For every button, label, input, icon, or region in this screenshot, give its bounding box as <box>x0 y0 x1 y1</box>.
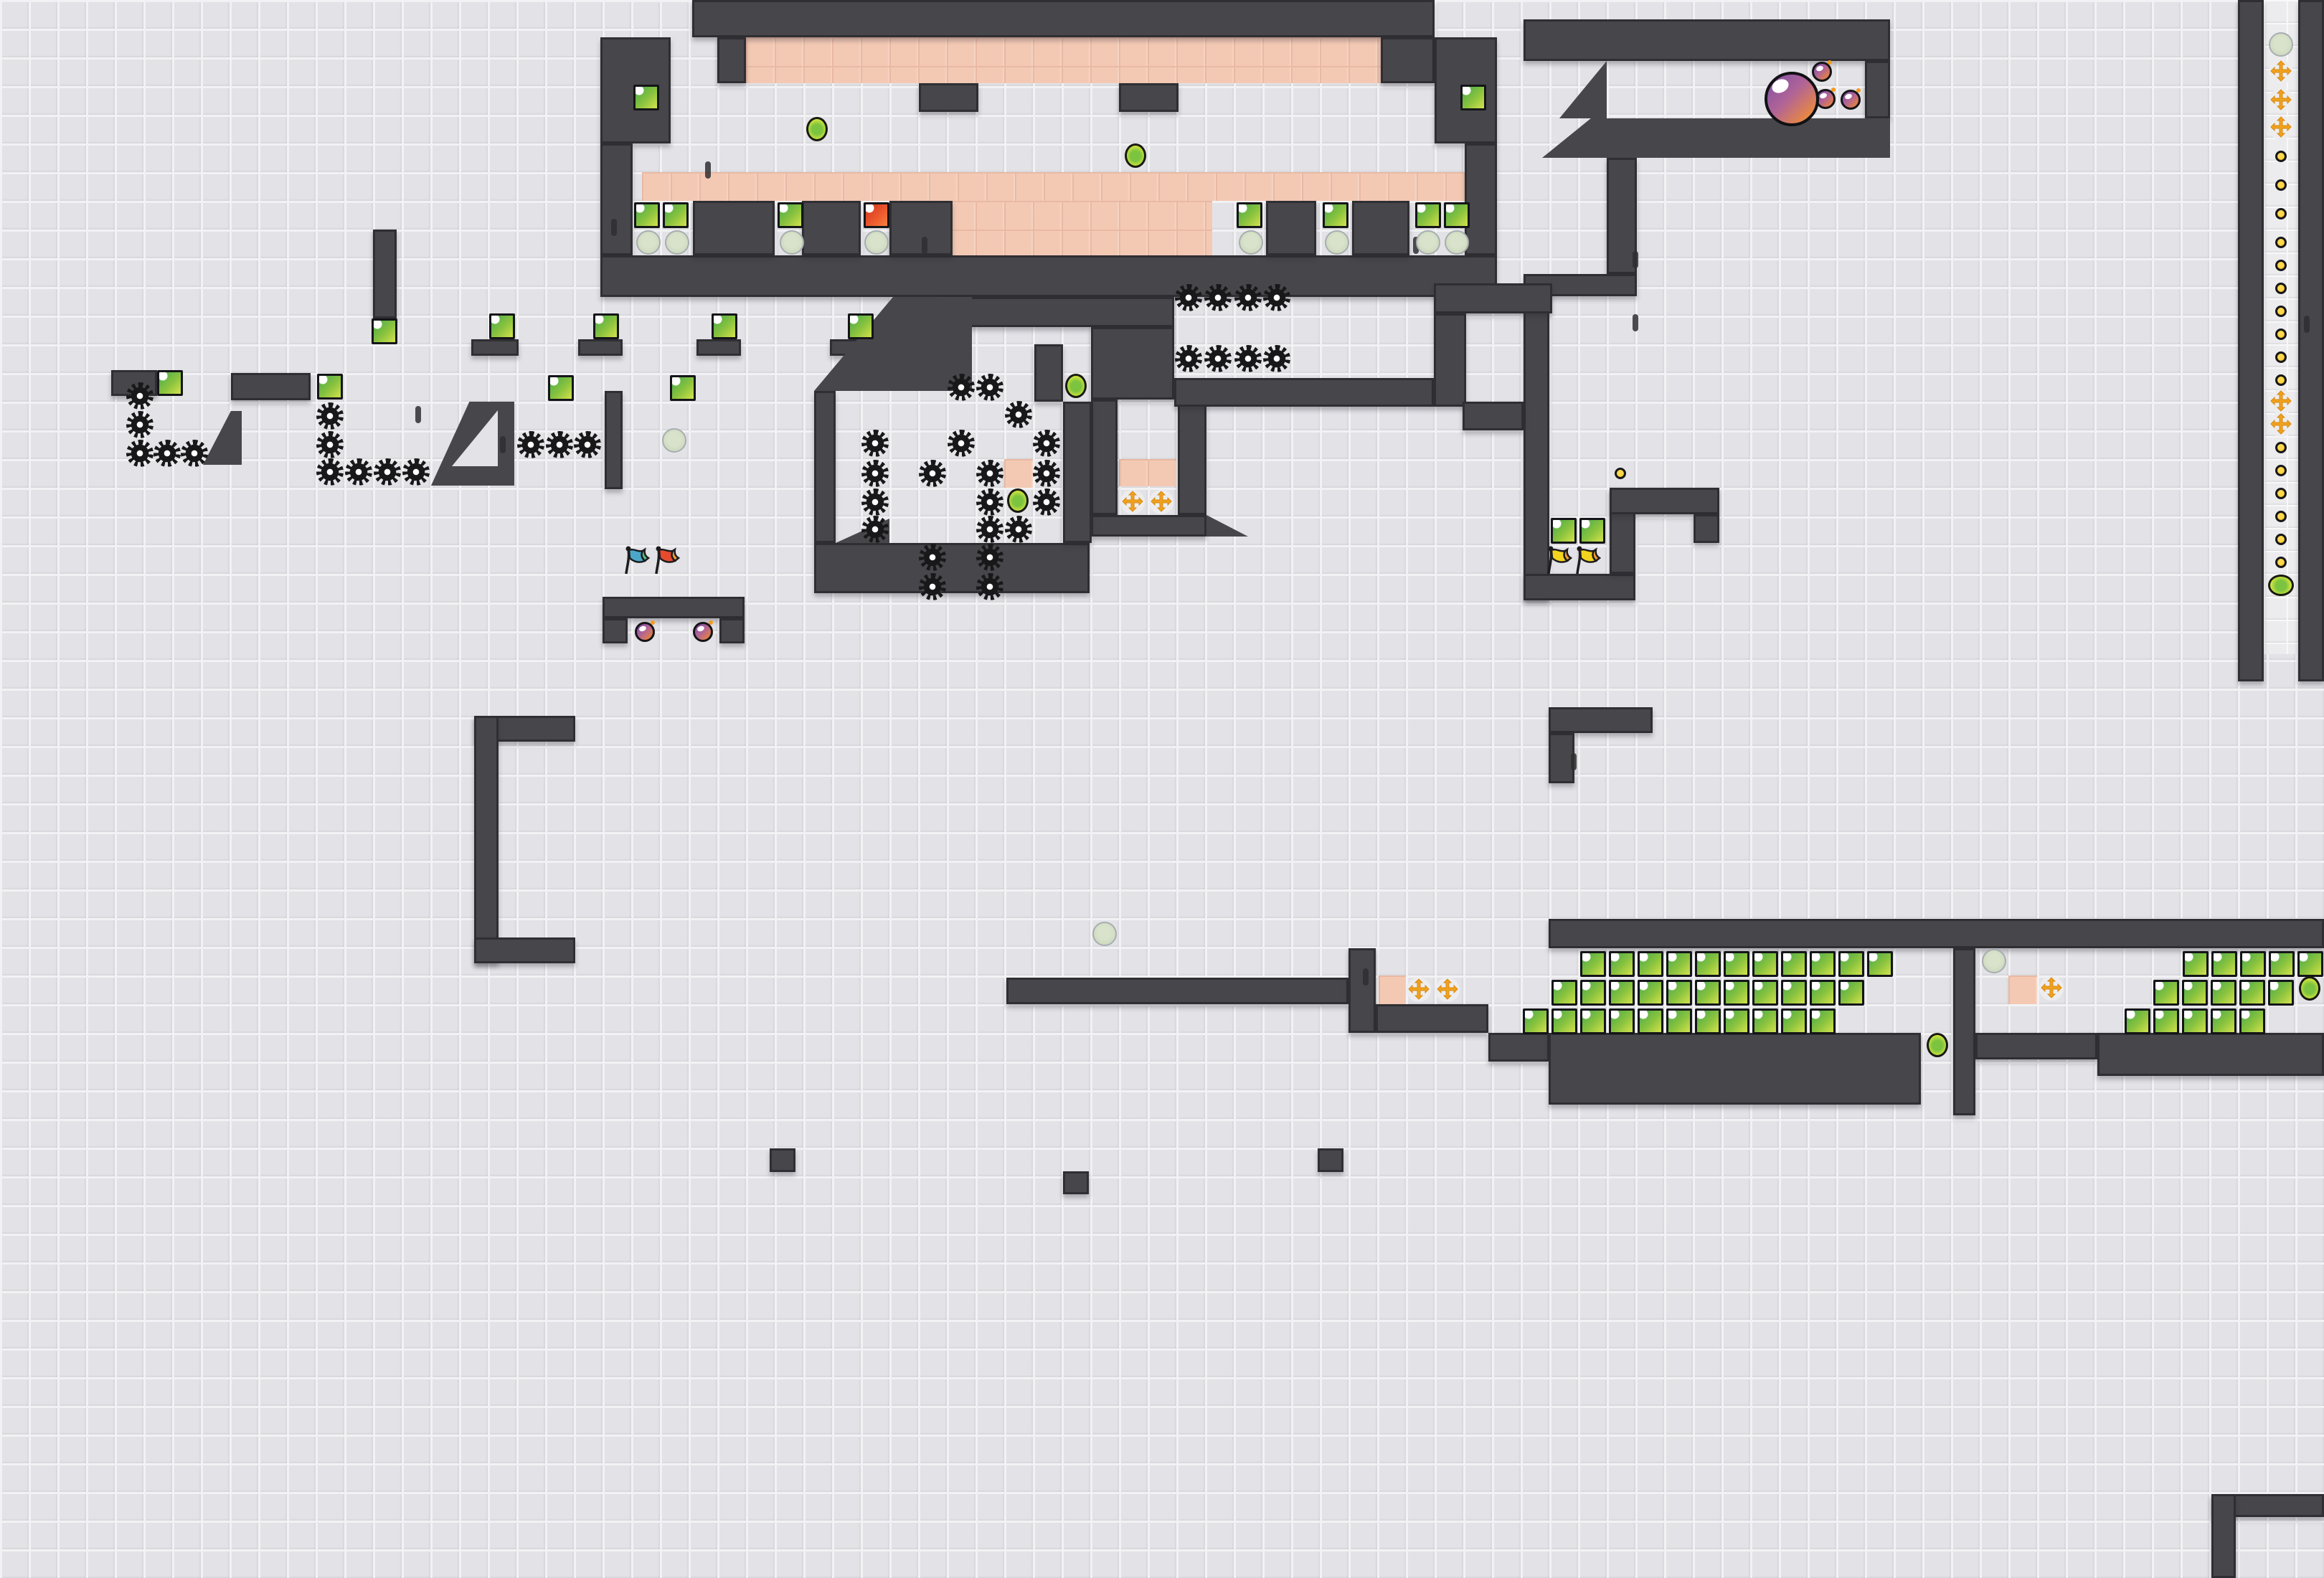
coin[interactable] <box>1125 143 1146 168</box>
saw-blade-hazard-icon[interactable] <box>1175 345 1202 372</box>
hazard-pink-tiles <box>1004 459 1033 488</box>
small-coin[interactable] <box>2275 374 2287 386</box>
green-block[interactable] <box>1838 980 1864 1006</box>
saw-blade-hazard-icon[interactable] <box>919 573 946 600</box>
wall-block <box>940 297 1174 327</box>
saw-blade-hazard-icon[interactable] <box>948 374 975 401</box>
collected-coin-marker <box>780 230 804 255</box>
wall-block <box>1091 515 1206 537</box>
green-block[interactable] <box>1638 1008 1663 1034</box>
saw-blade-hazard-icon[interactable] <box>126 411 153 438</box>
wall-block <box>600 255 1497 297</box>
green-block[interactable] <box>1666 1008 1692 1034</box>
wall-tick <box>500 436 506 453</box>
small-coin[interactable] <box>2275 557 2287 568</box>
arrow-cross-pickup-icon[interactable] <box>1406 977 1432 1003</box>
green-block[interactable] <box>663 202 689 228</box>
saw-blade-hazard-icon[interactable] <box>1234 345 1262 372</box>
green-block[interactable] <box>2269 951 2295 977</box>
arrow-cross-pickup-icon[interactable] <box>1120 489 1146 515</box>
small-coin[interactable] <box>2275 237 2287 248</box>
green-block[interactable] <box>1551 1008 1577 1034</box>
green-block[interactable] <box>778 202 803 228</box>
bomb-icon[interactable] <box>693 622 713 642</box>
wall-block <box>474 716 499 963</box>
collected-coin-marker <box>1445 230 1469 255</box>
green-block[interactable] <box>1609 1008 1635 1034</box>
wall-block <box>1524 574 1635 600</box>
arrow-cross-pickup-icon[interactable] <box>2268 115 2294 141</box>
wall-tick <box>1363 968 1369 986</box>
saw-blade-hazard-icon[interactable] <box>1033 430 1060 457</box>
small-coin[interactable] <box>2275 329 2287 340</box>
saw-blade-hazard-icon[interactable] <box>1263 284 1290 311</box>
green-block[interactable] <box>1724 1008 1749 1034</box>
flag-yellow-icon[interactable] <box>1544 544 1575 575</box>
green-block[interactable] <box>593 313 619 339</box>
green-block[interactable] <box>1237 202 1262 228</box>
wall-block <box>1610 488 1719 514</box>
wall-block <box>1953 948 1975 1115</box>
collected-coin-marker <box>662 428 686 453</box>
green-block[interactable] <box>1666 951 1692 977</box>
green-block[interactable] <box>2153 1008 2179 1034</box>
wall-tick <box>611 219 617 236</box>
green-block[interactable] <box>2211 1008 2236 1034</box>
collected-coin-marker <box>665 230 689 255</box>
wall-block <box>2238 0 2264 681</box>
green-block[interactable] <box>1695 951 1721 977</box>
saw-blade-hazard-icon[interactable] <box>1005 401 1032 428</box>
saw-blade-hazard-icon[interactable] <box>546 431 573 458</box>
wall-tick <box>1571 753 1577 770</box>
green-block[interactable] <box>1695 980 1721 1006</box>
green-block[interactable] <box>1724 951 1749 977</box>
hazard-pink-tiles <box>1119 459 1176 486</box>
green-block[interactable] <box>1580 951 1606 977</box>
player-ball[interactable] <box>1765 72 1819 126</box>
coin[interactable] <box>1007 488 1029 513</box>
arrow-cross-pickup-icon[interactable] <box>2268 88 2294 113</box>
small-coin[interactable] <box>2275 442 2287 453</box>
saw-blade-hazard-icon[interactable] <box>861 430 889 457</box>
collected-coin-marker <box>636 230 661 255</box>
small-coin[interactable] <box>2275 465 2287 476</box>
green-block[interactable] <box>1666 980 1692 1006</box>
green-block[interactable] <box>1415 202 1441 228</box>
green-block[interactable] <box>548 375 574 401</box>
green-block[interactable] <box>2268 980 2294 1006</box>
wall-block <box>1865 61 1890 118</box>
flag-blue-icon[interactable] <box>621 544 653 575</box>
wall-block <box>692 0 1435 37</box>
bomb-icon[interactable] <box>635 622 655 642</box>
saw-blade-hazard-icon[interactable] <box>919 544 946 571</box>
green-block[interactable] <box>1724 980 1749 1006</box>
wall-block <box>1063 1171 1089 1194</box>
wall-block <box>1266 201 1316 255</box>
green-block[interactable] <box>2153 980 2179 1006</box>
wall-block <box>1549 707 1653 733</box>
saw-blade-hazard-icon[interactable] <box>316 402 344 430</box>
saw-blade-hazard-icon[interactable] <box>861 488 889 516</box>
green-block[interactable] <box>1781 951 1807 977</box>
wall-block <box>696 339 741 356</box>
wall-block <box>1975 1033 2097 1059</box>
wall-tick <box>1633 251 1638 268</box>
small-coin[interactable] <box>2275 534 2287 545</box>
coin[interactable] <box>2299 976 2320 1001</box>
wall-block <box>719 618 745 643</box>
green-block[interactable] <box>1523 1008 1549 1034</box>
small-coin[interactable] <box>2275 260 2287 271</box>
arrow-cross-pickup-icon[interactable] <box>2268 389 2294 415</box>
green-block[interactable] <box>2183 951 2209 977</box>
coin[interactable] <box>2268 575 2294 596</box>
red-block[interactable] <box>864 202 889 228</box>
wall-slope <box>203 411 242 465</box>
wall-block <box>693 201 775 255</box>
saw-blade-hazard-icon[interactable] <box>316 431 344 458</box>
green-block[interactable] <box>670 375 696 401</box>
green-block[interactable] <box>1444 202 1470 228</box>
bomb-icon[interactable] <box>1812 62 1832 82</box>
wall-block <box>1318 1148 1343 1172</box>
wall-tick <box>415 406 421 423</box>
saw-blade-hazard-icon[interactable] <box>402 458 430 486</box>
green-block[interactable] <box>848 313 874 339</box>
collected-coin-marker <box>1239 230 1263 255</box>
saw-blade-hazard-icon[interactable] <box>976 544 1003 571</box>
green-block[interactable] <box>1810 980 1836 1006</box>
wall-block <box>1381 37 1435 83</box>
green-block[interactable] <box>2240 951 2266 977</box>
wall-block <box>889 201 953 255</box>
green-block[interactable] <box>1867 951 1893 977</box>
wall-block <box>1434 313 1466 407</box>
green-block[interactable] <box>633 85 659 110</box>
saw-blade-hazard-icon[interactable] <box>517 431 544 458</box>
arrow-cross-pickup-icon[interactable] <box>2039 975 2064 1001</box>
wall-block <box>2298 0 2324 681</box>
green-block[interactable] <box>1551 518 1577 544</box>
green-block[interactable] <box>1752 1008 1778 1034</box>
saw-blade-hazard-icon[interactable] <box>1175 284 1202 311</box>
wall-block <box>1694 514 1719 543</box>
green-block[interactable] <box>2182 980 2208 1006</box>
wall-tick <box>2304 316 2310 333</box>
small-coin[interactable] <box>2275 151 2287 162</box>
saw-blade-hazard-icon[interactable] <box>976 573 1003 600</box>
saw-blade-hazard-icon[interactable] <box>976 516 1003 543</box>
green-block[interactable] <box>1580 1008 1606 1034</box>
saw-blade-hazard-icon[interactable] <box>976 460 1003 487</box>
wall-slope <box>1559 61 1607 118</box>
coin[interactable] <box>1065 374 1087 398</box>
saw-blade-hazard-icon[interactable] <box>861 460 889 487</box>
green-block[interactable] <box>2125 1008 2150 1034</box>
wall-block <box>1174 378 1434 407</box>
saw-blade-hazard-icon[interactable] <box>1234 284 1262 311</box>
saw-blade-hazard-icon[interactable] <box>374 458 401 486</box>
small-coin[interactable] <box>2275 208 2287 219</box>
saw-blade-hazard-icon[interactable] <box>1033 460 1060 487</box>
green-block[interactable] <box>1551 980 1577 1006</box>
saw-blade-hazard-icon[interactable] <box>1204 284 1232 311</box>
green-block[interactable] <box>1810 951 1836 977</box>
green-block[interactable] <box>372 318 397 344</box>
hazard-pink-tiles <box>642 172 1496 201</box>
small-coin[interactable] <box>2275 351 2287 363</box>
saw-blade-hazard-icon[interactable] <box>316 458 344 486</box>
hazard-pink-tiles <box>2008 975 2037 1004</box>
green-block[interactable] <box>1580 980 1606 1006</box>
saw-blade-hazard-icon[interactable] <box>948 430 975 457</box>
green-block[interactable] <box>2211 951 2237 977</box>
wall-block <box>1348 948 1376 1033</box>
wall-block <box>814 391 836 543</box>
wall-block <box>471 339 519 356</box>
flag-yellow-icon[interactable] <box>1572 544 1604 575</box>
saw-blade-hazard-icon[interactable] <box>861 516 889 543</box>
wall-tick <box>705 161 711 179</box>
green-block[interactable] <box>1323 202 1348 228</box>
wall-block <box>605 391 623 489</box>
coin[interactable] <box>1927 1033 1948 1057</box>
wall-block <box>814 543 1090 593</box>
green-block[interactable] <box>317 374 343 400</box>
wall-block <box>1524 19 1890 61</box>
wall-block <box>2211 1494 2236 1578</box>
green-block[interactable] <box>1638 980 1663 1006</box>
saw-blade-hazard-icon[interactable] <box>976 488 1003 516</box>
coin[interactable] <box>806 117 828 141</box>
wall-block <box>1034 344 1063 402</box>
wall-block <box>600 143 633 255</box>
small-coin[interactable] <box>2275 179 2287 191</box>
saw-blade-hazard-icon[interactable] <box>1033 488 1060 516</box>
green-block[interactable] <box>634 202 660 228</box>
green-block[interactable] <box>489 313 515 339</box>
green-block[interactable] <box>2182 1008 2208 1034</box>
green-block[interactable] <box>1579 518 1605 544</box>
arrow-cross-pickup-icon[interactable] <box>1148 489 1174 515</box>
small-coin[interactable] <box>1615 468 1626 479</box>
saw-blade-hazard-icon[interactable] <box>1263 345 1290 372</box>
wall-block <box>1091 400 1118 515</box>
wall-block <box>373 230 397 318</box>
wall-block <box>1119 83 1178 112</box>
green-block[interactable] <box>2239 980 2265 1006</box>
wall-block <box>1549 919 2324 948</box>
game-level-map <box>0 0 2324 1578</box>
wall-block <box>1434 283 1552 313</box>
wall-block <box>231 373 311 400</box>
green-block[interactable] <box>1460 85 1486 110</box>
wall-block <box>1465 143 1497 255</box>
saw-blade-hazard-icon[interactable] <box>126 440 153 467</box>
wall-block <box>603 597 745 618</box>
wall-slope <box>1206 515 1248 537</box>
green-block[interactable] <box>1609 980 1635 1006</box>
flag-red-icon[interactable] <box>651 544 683 575</box>
wall-block <box>1463 402 1524 430</box>
wall-block <box>603 618 628 643</box>
saw-blade-hazard-icon[interactable] <box>1204 345 1232 372</box>
green-block[interactable] <box>2297 951 2323 977</box>
arrow-cross-pickup-icon[interactable] <box>1435 977 1460 1003</box>
saw-blade-hazard-icon[interactable] <box>574 431 601 458</box>
green-block[interactable] <box>1638 951 1663 977</box>
saw-blade-hazard-icon[interactable] <box>919 460 946 487</box>
collected-coin-marker <box>864 230 889 255</box>
hazard-pink-tiles <box>1379 975 1406 1004</box>
wall-slope <box>1542 118 1890 158</box>
green-block[interactable] <box>712 313 737 339</box>
green-block[interactable] <box>1695 1008 1721 1034</box>
wall-block <box>1006 978 1348 1004</box>
green-block[interactable] <box>1810 1008 1836 1034</box>
wall-block <box>717 37 746 83</box>
wall-block <box>1376 1004 1488 1033</box>
green-block[interactable] <box>1609 951 1635 977</box>
saw-blade-hazard-icon[interactable] <box>1005 516 1032 543</box>
small-coin[interactable] <box>2275 306 2287 317</box>
wall-block <box>1352 201 1409 255</box>
collected-coin-marker <box>1325 230 1349 255</box>
green-block[interactable] <box>2211 980 2236 1006</box>
small-coin[interactable] <box>2275 511 2287 522</box>
green-block[interactable] <box>1752 980 1778 1006</box>
green-block[interactable] <box>1752 951 1778 977</box>
collected-coin-marker <box>1416 230 1440 255</box>
wall-block <box>474 937 575 963</box>
green-block[interactable] <box>1781 1008 1807 1034</box>
hazard-pink-tiles <box>947 201 1212 255</box>
saw-blade-hazard-icon[interactable] <box>126 382 153 410</box>
saw-blade-hazard-icon[interactable] <box>153 440 181 467</box>
wall-block <box>2097 1033 2324 1076</box>
green-block[interactable] <box>2239 1008 2265 1034</box>
collected-coin-marker <box>1982 949 2006 973</box>
wall-block <box>1063 402 1092 543</box>
saw-blade-hazard-icon[interactable] <box>345 458 372 486</box>
green-block[interactable] <box>1781 980 1807 1006</box>
wall-block <box>1178 402 1206 515</box>
small-coin[interactable] <box>2275 488 2287 499</box>
arrow-cross-pickup-icon[interactable] <box>2268 59 2294 85</box>
small-coin[interactable] <box>2275 283 2287 294</box>
hazard-pink-tiles <box>746 37 1381 83</box>
wall-block <box>1488 1033 1549 1062</box>
wall-tick <box>1633 314 1638 331</box>
collected-coin-marker <box>2269 32 2293 57</box>
wall-tick <box>922 237 927 254</box>
saw-blade-hazard-icon[interactable] <box>181 440 208 467</box>
wall-block <box>1549 1033 1921 1105</box>
wall-block <box>1091 327 1174 400</box>
wall-block <box>770 1148 795 1172</box>
wall-block <box>919 83 978 112</box>
green-block[interactable] <box>157 370 183 396</box>
arrow-cross-pickup-icon[interactable] <box>2268 412 2294 438</box>
bomb-icon[interactable] <box>1841 90 1861 110</box>
collected-coin-marker <box>1092 922 1117 946</box>
wall-block <box>578 339 623 356</box>
green-block[interactable] <box>1838 951 1864 977</box>
wall-block <box>802 201 861 255</box>
saw-blade-hazard-icon[interactable] <box>976 374 1003 401</box>
